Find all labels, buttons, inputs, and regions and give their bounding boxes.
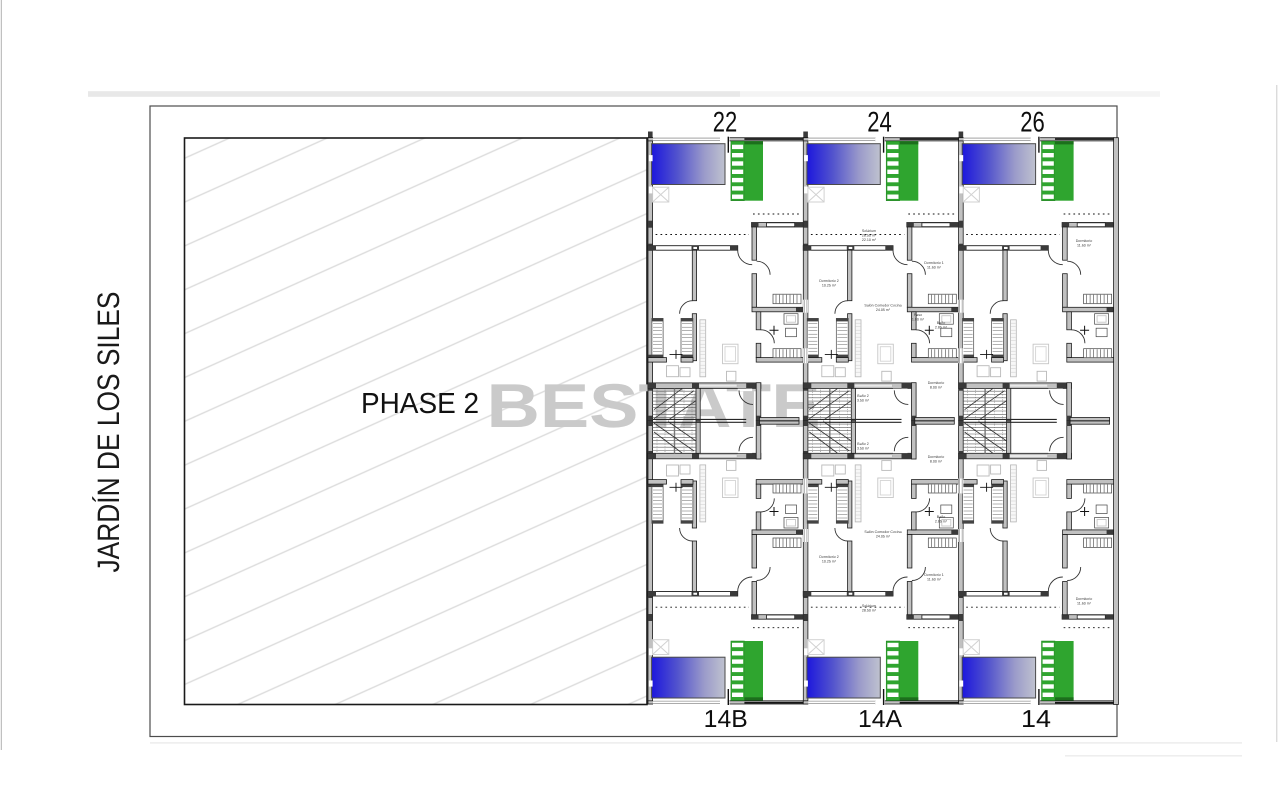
svg-text:3.50 m²: 3.50 m² <box>857 399 870 403</box>
svg-text:Dormitorio 1: Dormitorio 1 <box>924 261 944 265</box>
svg-text:24.05 m²: 24.05 m² <box>876 535 891 539</box>
svg-text:24: 24 <box>867 107 892 139</box>
svg-text:Dormitorio 1: Dormitorio 1 <box>924 573 944 577</box>
svg-text:Dormitorio: Dormitorio <box>1076 239 1093 243</box>
svg-text:14: 14 <box>1021 706 1051 733</box>
svg-text:Dormitorio: Dormitorio <box>928 455 945 459</box>
svg-text:Baño: Baño <box>937 321 945 325</box>
svg-text:Solárium: Solárium <box>862 604 876 608</box>
svg-text:11.60 m²: 11.60 m² <box>927 266 942 270</box>
svg-text:8.00 m²: 8.00 m² <box>930 460 943 464</box>
svg-text:2.85 m²: 2.85 m² <box>935 326 948 330</box>
svg-text:Paso: Paso <box>914 313 922 317</box>
svg-text:1.80 m²: 1.80 m² <box>912 318 925 322</box>
svg-text:11.60 m²: 11.60 m² <box>927 578 942 582</box>
svg-text:10.25 m²: 10.25 m² <box>822 560 837 564</box>
svg-text:8.00 m²: 8.00 m² <box>930 386 943 390</box>
svg-text:Baño: Baño <box>937 515 945 519</box>
svg-text:Dormitorio: Dormitorio <box>1076 597 1093 601</box>
svg-text:2.85 m²: 2.85 m² <box>935 520 948 524</box>
svg-text:28.50 m²: 28.50 m² <box>862 609 877 613</box>
svg-text:Dormitorio 2: Dormitorio 2 <box>819 279 839 283</box>
svg-text:PHASE 2: PHASE 2 <box>361 388 479 420</box>
svg-text:11.60 m²: 11.60 m² <box>1077 602 1092 606</box>
svg-text:3.50 m²: 3.50 m² <box>857 447 870 451</box>
svg-text:Solárium: Solárium <box>862 229 876 233</box>
svg-text:Baño 2: Baño 2 <box>857 442 868 446</box>
svg-text:22.10 m²: 22.10 m² <box>862 238 877 242</box>
svg-text:14A: 14A <box>858 706 903 733</box>
svg-text:24.05 m²: 24.05 m² <box>876 308 891 312</box>
svg-text:26: 26 <box>1020 107 1045 139</box>
svg-text:28.50 m²: 28.50 m² <box>862 234 877 238</box>
svg-text:22: 22 <box>713 107 738 139</box>
svg-text:11.60 m²: 11.60 m² <box>1077 244 1092 248</box>
svg-text:JARDÍN DE LOS SILES: JARDÍN DE LOS SILES <box>91 292 126 573</box>
svg-text:10.25 m²: 10.25 m² <box>822 284 837 288</box>
svg-text:Salón Comedor Cocina: Salón Comedor Cocina <box>864 304 901 308</box>
svg-text:Baño 2: Baño 2 <box>857 394 868 398</box>
svg-text:Dormitorio 2: Dormitorio 2 <box>819 555 839 559</box>
svg-text:14B: 14B <box>704 706 748 733</box>
svg-text:Dormitorio: Dormitorio <box>928 381 945 385</box>
svg-text:Salón Comedor Cocina: Salón Comedor Cocina <box>864 530 901 534</box>
